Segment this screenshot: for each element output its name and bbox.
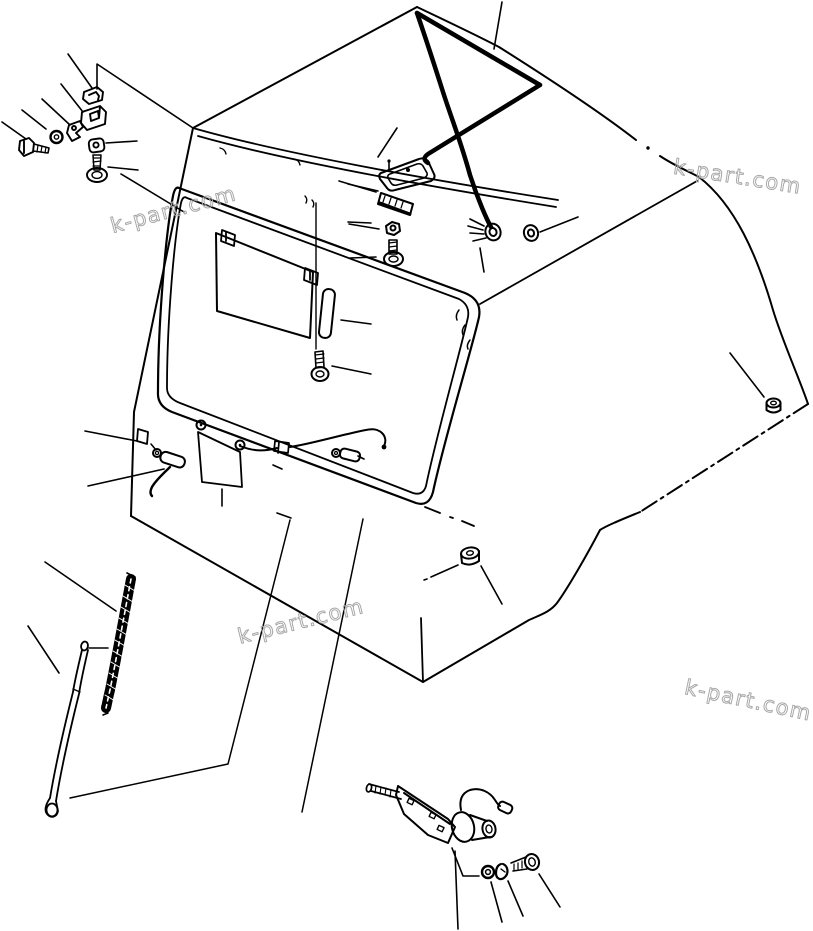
cab-wiper-parts-diagram: k-part.com k-part.com k-part.com k-part.… <box>0 0 813 931</box>
watermark-text-top-right: k-part.com <box>672 155 804 199</box>
flat-washer <box>88 138 105 153</box>
leader-tl-5 <box>2 122 26 139</box>
leader-arm <box>28 626 59 673</box>
seal-tick-1 <box>456 310 459 320</box>
tank-pin-cap <box>387 159 390 162</box>
lug-hole <box>72 126 76 130</box>
window-frame-inner <box>167 197 468 494</box>
watermark-text-top-left: k-part.com <box>108 181 239 238</box>
tube-end-cap <box>382 445 387 450</box>
tank-nut <box>386 222 400 235</box>
roof-right-ridge <box>417 7 636 140</box>
visor-holder-bar <box>318 289 335 339</box>
leader-washer-right <box>106 141 137 143</box>
motor-wire <box>460 789 500 810</box>
tube-clamp-2-dot <box>239 444 242 447</box>
leader-tank-2 <box>339 181 376 192</box>
leader-grommet-lower-a <box>424 565 458 580</box>
parts-diagram-page: k-part.com k-part.com k-part.com k-part.… <box>0 0 813 931</box>
hose-grommet <box>483 221 503 242</box>
leader-tl-2 <box>61 84 83 112</box>
wire-connector <box>497 801 513 815</box>
leader-tank-bolt <box>350 257 376 258</box>
gutter-tick-1 <box>220 148 226 154</box>
leader-tl-1 <box>68 54 92 88</box>
front-right-corner <box>421 618 423 682</box>
cab-outline <box>131 7 808 682</box>
document-pocket <box>198 432 242 487</box>
leader-pump-1 <box>85 431 137 441</box>
frame-tick-pair-a <box>305 196 307 203</box>
washer-ring-hole <box>54 135 58 139</box>
watermark-text-bottom-right: k-part.com <box>683 675 813 725</box>
leader-pump-2 <box>88 469 164 486</box>
grommet-lower <box>460 546 479 564</box>
roof-gutter-line-2 <box>198 136 556 207</box>
dash-mark-2 <box>273 465 282 469</box>
dash-mark-1 <box>277 513 291 518</box>
roof-grommet-2 <box>522 223 540 243</box>
clip-upper <box>83 87 103 104</box>
leader-apex <box>494 2 502 49</box>
tube-branch <box>240 429 385 450</box>
ridge-dash-dot <box>646 146 649 149</box>
leader-blade <box>45 562 116 611</box>
watermark-text-center: k-part.com <box>235 594 366 649</box>
leader-visor-bolt <box>332 366 371 374</box>
leader-tl-3 <box>42 99 70 125</box>
grommet-right-panel <box>767 399 781 413</box>
washer-pump <box>151 444 186 469</box>
lock-washer <box>482 866 494 878</box>
leader-tl-4 <box>22 110 46 129</box>
frame-tick-pair-b <box>312 200 314 207</box>
tank-bolt <box>384 240 403 266</box>
washer-ring <box>51 131 63 143</box>
roof-left-ridge <box>193 7 417 128</box>
arm-edge-outer <box>50 650 82 798</box>
arm-edge-inner <box>56 650 88 801</box>
hose-leg-return <box>425 85 540 163</box>
leader-visor-b <box>349 224 379 229</box>
wiper-blade <box>102 573 135 715</box>
hardware-group-top-left <box>19 87 107 182</box>
leader-arm-bent <box>70 520 290 798</box>
window-sill-dash-3 <box>462 521 474 526</box>
leader-lockwasher <box>491 882 502 922</box>
hose-grommet-inner <box>488 227 497 237</box>
tank-nut-hole <box>391 226 396 231</box>
side-grommets <box>460 399 780 565</box>
leader-clip-bent <box>97 64 193 128</box>
roof-grommets <box>468 219 540 243</box>
hex-bolt <box>19 138 49 156</box>
leader-grommet-down <box>480 248 484 272</box>
leader-springwasher <box>508 881 523 916</box>
front-bottom-edge <box>131 516 423 682</box>
roof-grommet-2-inner <box>527 229 535 238</box>
machine-screw <box>87 155 107 182</box>
tube-clamp-1-dot <box>200 424 203 427</box>
leader-screw-right <box>108 167 138 170</box>
frame-hose-clamp <box>137 429 148 444</box>
window-sill-dash-1 <box>425 507 440 513</box>
leader-mount-bolt <box>539 874 560 907</box>
motor-bracket <box>396 786 455 843</box>
roof-gutter-line-1 <box>193 128 558 200</box>
visor-panel <box>216 233 313 338</box>
right-panel-bottom-curve <box>423 512 640 682</box>
wiper-arm <box>46 641 89 817</box>
washer-nozzle <box>332 448 364 463</box>
seal-tick-3 <box>467 340 470 349</box>
leader-grommet-lower-b <box>481 566 502 604</box>
grommet-whiskers <box>468 219 486 241</box>
washer-tube-assembly <box>137 421 386 497</box>
lock-washer-hole <box>486 870 491 875</box>
leader-tank-1 <box>378 128 397 157</box>
leader-tank-nut <box>348 222 371 223</box>
spring-washer <box>496 864 507 879</box>
leader-holder-bar <box>341 320 371 324</box>
visor-mount-bolt <box>312 351 329 381</box>
leader-pivot-long <box>302 519 363 812</box>
clamp-main <box>81 106 106 130</box>
leader-grommet-right <box>730 353 764 397</box>
leader-grommet-2 <box>540 217 578 232</box>
right-panel-bottom-dashed <box>640 404 808 512</box>
mount-bolt <box>511 852 541 871</box>
rear-window-frame <box>158 188 480 526</box>
wiper-motor-assembly <box>366 783 541 879</box>
sun-visor <box>216 230 335 381</box>
leader-lines <box>2 2 764 929</box>
window-sill-dash-2 <box>450 517 453 518</box>
tank-dot <box>406 168 410 172</box>
arm-hook-end <box>47 804 58 817</box>
